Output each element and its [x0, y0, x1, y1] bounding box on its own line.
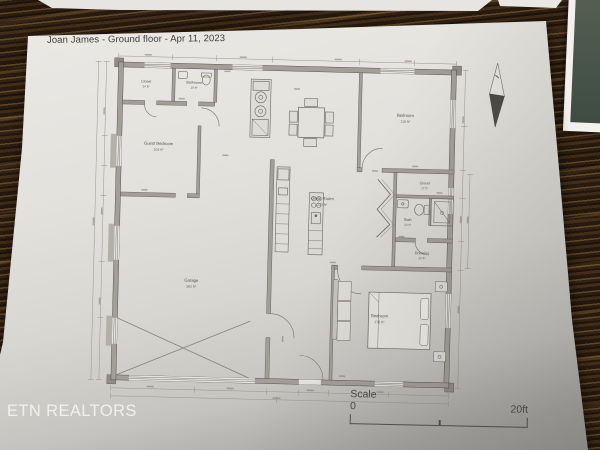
room-label-guest-bedroom: Guest Bedroom — [144, 141, 174, 147]
laundry-appliances — [250, 79, 271, 137]
room-label-bath-r: Bath — [404, 218, 412, 222]
room-area-bedroom-bottom: 178 ft² — [374, 320, 385, 324]
scale-min: 0 — [350, 401, 356, 412]
sink — [397, 200, 408, 208]
room-label-bathroom-tl: Bathroom — [186, 81, 202, 85]
garage-cross-brace — [116, 318, 250, 378]
room-area-closet-r: 17 ft² — [421, 186, 428, 190]
kitchen-counter — [275, 167, 290, 252]
room-area-garage: 362 ft² — [186, 285, 197, 289]
room-label-closet-tl: Closet — [141, 79, 151, 83]
room-label-bedroom-bottom: Bedroom — [371, 313, 389, 318]
floor-plan-sheet: Joan James - Ground floor - Apr 11, 2023 — [0, 0, 600, 450]
photo-of-floor-plan: Joan James - Ground floor - Apr 11, 2023 — [0, 0, 600, 450]
room-label-closet-r: Closet — [420, 181, 430, 185]
north-arrow-icon — [489, 63, 506, 127]
room-area-bedroom-top: 118 ft² — [400, 120, 411, 124]
room-area-closet-tl: 24 ft² — [142, 84, 149, 88]
stairs-zigzag — [376, 179, 394, 237]
scale-legend: Scale 0 20ft — [350, 389, 529, 428]
bedroom-furniture — [331, 279, 447, 362]
scale-midpoint-tick — [439, 420, 441, 425]
sofa — [332, 279, 351, 340]
room-label-great-room: Great Room — [311, 196, 334, 202]
room-area-great-room: 233 ft² — [317, 203, 328, 207]
floor-plan-drawing: Closet 24 ft² Bathroom 19 ft² Guest Bedr… — [76, 47, 520, 413]
plan-title: Joan James - Ground floor - Apr 11, 2023 — [47, 33, 225, 46]
scale-bar — [350, 414, 528, 428]
room-area-dressing: 20 ft² — [418, 256, 425, 260]
scale-max: 20ft — [510, 404, 528, 415]
room-area-bath-r: 20 ft² — [404, 223, 411, 227]
room-area-bathroom-tl: 19 ft² — [190, 86, 197, 90]
paper-shadow-wrap: Joan James - Ground floor - Apr 11, 2023 — [0, 0, 600, 450]
toilet-tank — [424, 205, 429, 214]
toilet — [414, 204, 423, 215]
room-label-dressing: Dressing — [415, 251, 429, 255]
room-area-guest-bedroom: 104 ft² — [153, 148, 164, 152]
watermark: ETN REALTORS — [7, 402, 137, 421]
dining-table — [289, 98, 334, 147]
room-label-garage: Garage — [184, 278, 199, 283]
room-label-bedroom-top: Bedroom — [397, 113, 415, 118]
